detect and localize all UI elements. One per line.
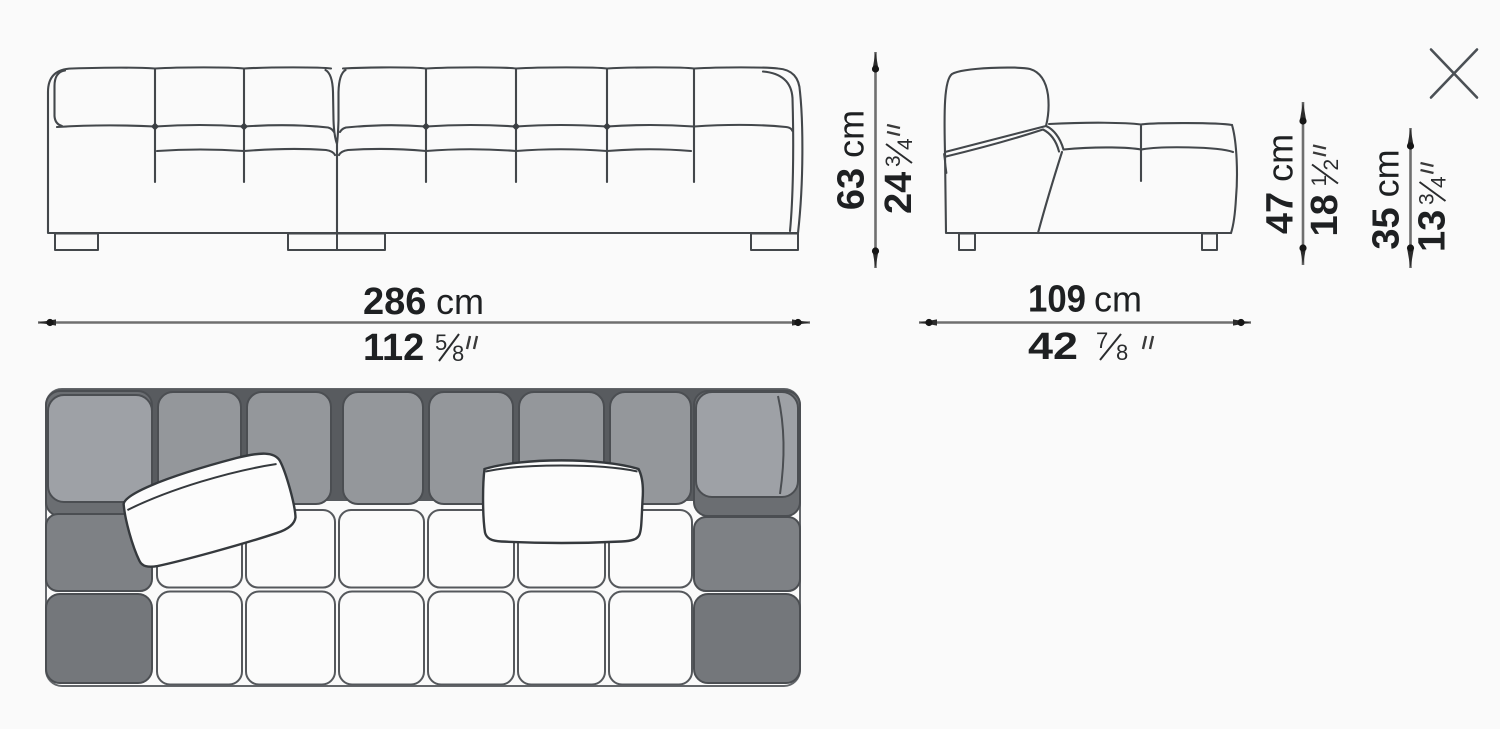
svg-text:8: 8 bbox=[1116, 340, 1128, 365]
svg-text:63 cm: 63 cm bbox=[831, 110, 873, 210]
svg-text:cm: cm bbox=[1094, 279, 1142, 320]
svg-text:112: 112 bbox=[363, 327, 424, 369]
svg-text:4: 4 bbox=[894, 138, 917, 150]
svg-text:4: 4 bbox=[1428, 176, 1451, 188]
svg-text:24: 24 bbox=[878, 172, 920, 214]
svg-text:cm: cm bbox=[436, 281, 484, 322]
svg-text:13: 13 bbox=[1412, 210, 1454, 252]
svg-text:35 cm: 35 cm bbox=[1366, 149, 1408, 249]
svg-text:3: 3 bbox=[1416, 193, 1439, 205]
svg-text:7: 7 bbox=[1096, 328, 1108, 353]
svg-text:47 cm: 47 cm bbox=[1260, 134, 1302, 234]
svg-text:109: 109 bbox=[1028, 279, 1086, 321]
svg-text:42: 42 bbox=[1028, 326, 1078, 368]
svg-text:286: 286 bbox=[363, 281, 426, 323]
svg-text:18: 18 bbox=[1304, 194, 1346, 236]
svg-text:3: 3 bbox=[882, 155, 905, 167]
svg-text:2: 2 bbox=[1320, 159, 1343, 171]
svg-text:8: 8 bbox=[452, 341, 464, 366]
